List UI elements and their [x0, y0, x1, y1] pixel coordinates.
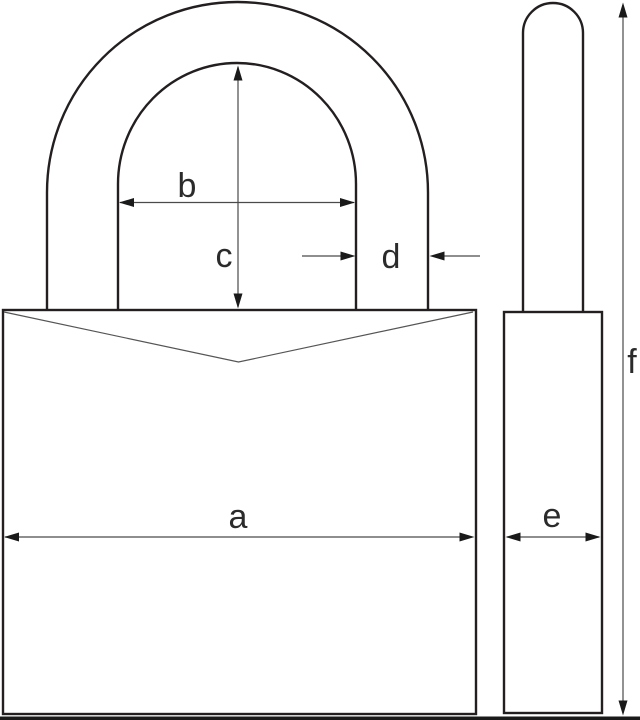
arrowhead-left-icon — [119, 198, 134, 207]
dimension-a-label: a — [229, 498, 248, 536]
shackle-inner-outline — [118, 63, 356, 311]
arrowhead-down-icon — [234, 294, 243, 309]
diagram-svg: b c d a e — [0, 0, 640, 720]
dimension-e-label: e — [543, 497, 562, 535]
dimension-b: b — [119, 167, 355, 207]
dimension-d-label: d — [382, 238, 401, 276]
dimension-f-label: f — [627, 343, 637, 381]
arrowhead-down-icon — [619, 701, 628, 716]
dimension-b-label: b — [178, 167, 197, 205]
arrowhead-up-icon — [234, 66, 243, 81]
side-view — [504, 3, 602, 713]
dimension-d: d — [302, 238, 480, 276]
front-view — [3, 2, 476, 714]
bottom-edge-bar — [0, 717, 640, 720]
arrowhead-left-icon — [430, 252, 445, 261]
dimension-c-label: c — [216, 237, 233, 275]
dimension-f: f — [619, 3, 638, 716]
dimension-c: c — [216, 66, 243, 309]
side-shackle-outline — [523, 3, 583, 313]
arrowhead-up-icon — [619, 3, 628, 18]
arrowhead-right-icon — [340, 198, 355, 207]
padlock-dimension-diagram: b c d a e — [0, 0, 640, 720]
arrowhead-right-icon — [341, 252, 356, 261]
